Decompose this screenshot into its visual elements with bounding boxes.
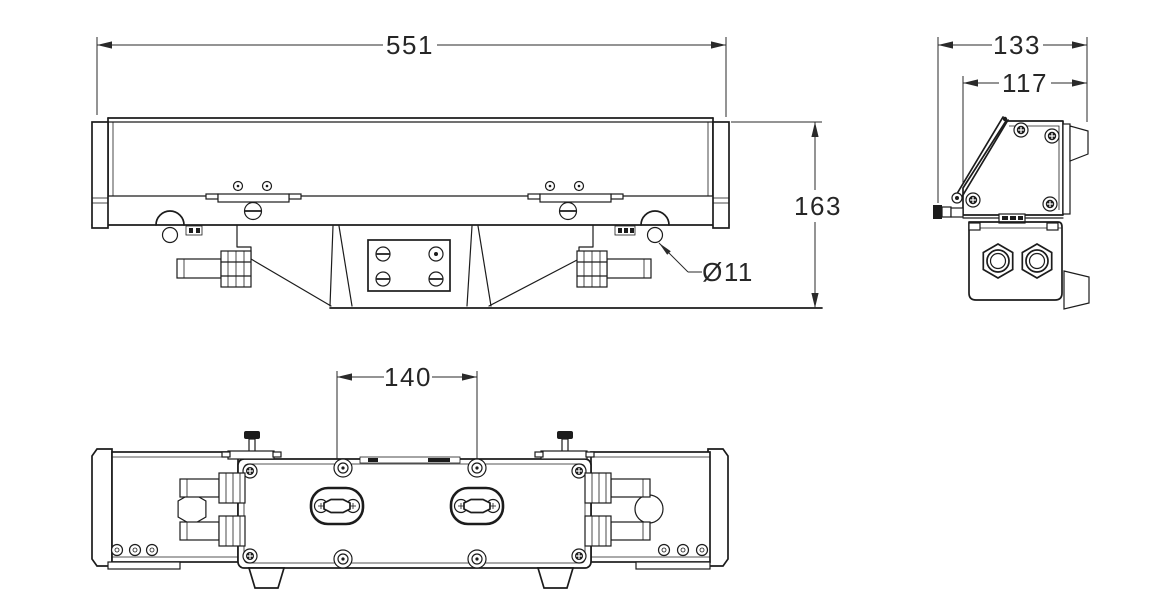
- front-housing: [92, 118, 729, 225]
- latch-left: [206, 182, 301, 220]
- keyhole-slot-right: [451, 488, 503, 524]
- latch-right: [528, 182, 623, 220]
- foot-left: [249, 568, 284, 588]
- dim-slot-spacing-label: 140: [384, 362, 432, 392]
- hex-gland-icon: [1022, 244, 1051, 278]
- dim-front-width-label: 551: [386, 30, 434, 60]
- eye-hole-left: [156, 211, 184, 243]
- bracket-leg: [330, 226, 333, 306]
- dim-side-overall-label: 133: [993, 30, 1041, 60]
- front-left-endcap: [92, 122, 108, 228]
- phillips-screw-icon: [1043, 197, 1057, 211]
- bottom-view: 140: [92, 362, 728, 588]
- bracket-leg: [467, 226, 472, 306]
- technical-drawing: 551: [0, 0, 1157, 600]
- drawing-canvas: 551: [0, 0, 1157, 600]
- washer-screw-icon: [334, 459, 352, 477]
- round-boss-icon: [635, 495, 663, 523]
- terminal-plate: [368, 240, 450, 291]
- side-endcap-tabs: [1063, 124, 1089, 309]
- foot-right: [538, 568, 573, 588]
- phillips-screw-icon: [966, 193, 980, 207]
- washer-screw-icon: [468, 459, 486, 477]
- dim-front-width: 551: [97, 30, 726, 117]
- dim-front-height-label: 163: [794, 191, 842, 221]
- side-lower-body: [969, 222, 1062, 300]
- thumb-screw-left: [222, 431, 281, 459]
- vent-plug-right: [615, 226, 635, 235]
- dim-eye-hole: Ø11: [659, 243, 754, 287]
- phillips-screw-icon: [1014, 123, 1028, 137]
- bottom-left-endcap: [92, 449, 112, 566]
- keyhole-slot-left: [311, 488, 363, 524]
- dim-eye-hole-label: Ø11: [702, 257, 754, 287]
- breather-valve: [933, 205, 963, 219]
- washer-screw-icon: [334, 550, 352, 568]
- phillips-screw-icon: [1045, 129, 1059, 143]
- phillips-screw-icon: [572, 464, 586, 478]
- driver-box: [238, 457, 591, 568]
- front-right-endcap: [713, 122, 729, 228]
- eye-hole-right: [641, 211, 669, 243]
- hinge-bracket: [955, 117, 1003, 197]
- vent-plug-left: [186, 226, 202, 235]
- front-view: 551: [92, 30, 842, 308]
- bottom-right-endcap: [708, 449, 728, 566]
- phillips-screw-icon: [572, 549, 586, 563]
- washer-screw-icon: [468, 550, 486, 568]
- thumb-screw-right: [535, 431, 594, 459]
- hex-gland-icon: [983, 244, 1012, 278]
- dim-side-body-label: 117: [1002, 68, 1048, 98]
- cable-gland-front-left: [177, 251, 251, 287]
- bottom-right-section: [591, 452, 710, 569]
- phillips-screw-icon: [243, 549, 257, 563]
- cable-gland-front-right: [577, 251, 651, 287]
- bottom-left-section: [108, 452, 238, 569]
- side-view: 133 117: [933, 30, 1089, 309]
